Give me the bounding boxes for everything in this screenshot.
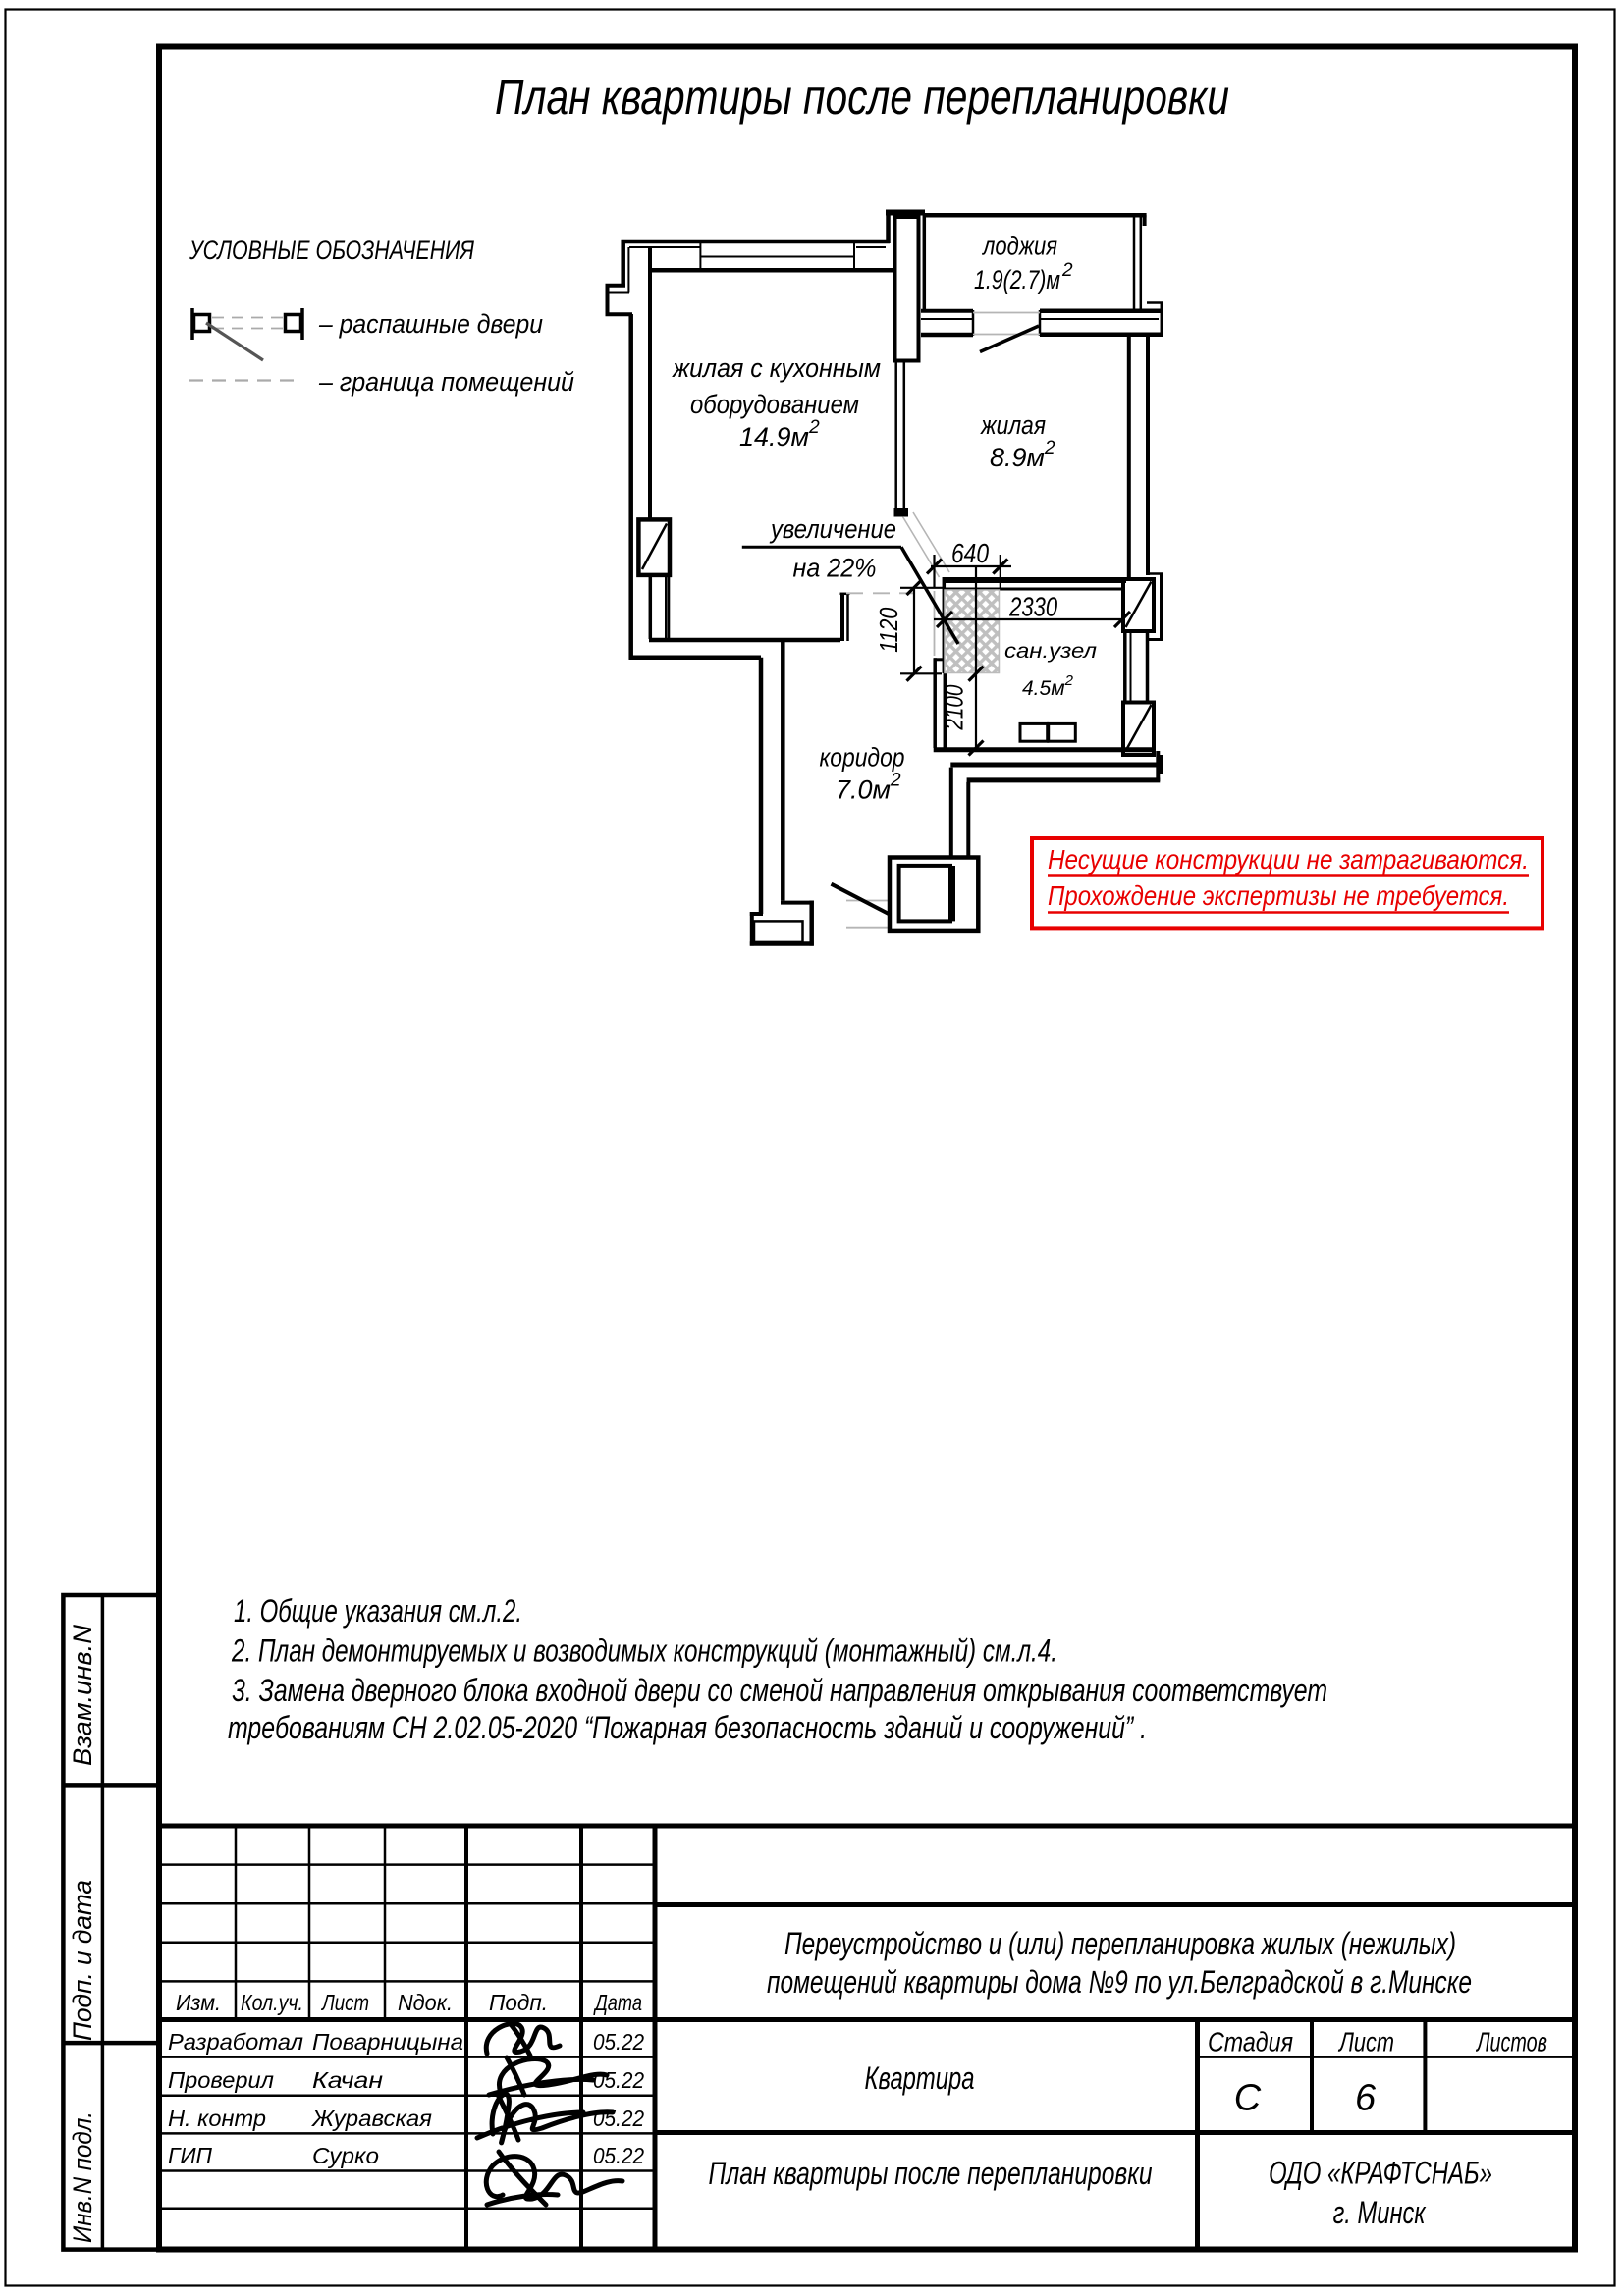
svg-text:Лист: Лист: [320, 1990, 369, 2015]
svg-text:коридор: коридор: [820, 743, 905, 773]
svg-text:14.9м2: 14.9м2: [739, 417, 820, 452]
svg-text:помещений квартиры дома №9 по: помещений квартиры дома №9 по ул.Белград…: [767, 1964, 1472, 2000]
svg-text:на 22%: на 22%: [793, 554, 877, 583]
svg-text:Квартира: Квартира: [865, 2060, 975, 2096]
svg-text:требованиям СН 2.02.05-2020 “П: требованиям СН 2.02.05-2020 “Пожарная бе…: [228, 1710, 1147, 1745]
svg-text:1. Общие указания см.л.2.: 1. Общие указания см.л.2.: [234, 1593, 522, 1629]
svg-text:сан.узел: сан.узел: [1004, 640, 1097, 663]
svg-text:Взам.инв.N: Взам.инв.N: [68, 1625, 97, 1766]
svg-text:Прохождение экспертизы не треб: Прохождение экспертизы не требуется.: [1048, 881, 1509, 911]
svg-text:ГИП: ГИП: [168, 2143, 212, 2168]
svg-text:Лист: Лист: [1337, 2027, 1394, 2057]
svg-text:План квартиры после перепланир: План квартиры после перепланировки: [495, 70, 1229, 125]
svg-text:640: 640: [951, 538, 989, 568]
svg-text:Стадия: Стадия: [1208, 2027, 1293, 2057]
svg-text:1120: 1120: [874, 607, 903, 652]
svg-text:05.22: 05.22: [593, 2029, 644, 2055]
svg-text:оборудованием: оборудованием: [690, 390, 859, 419]
svg-text:Кол.уч.: Кол.уч.: [241, 1990, 303, 2015]
svg-text:Подп.: Подп.: [489, 1990, 548, 2015]
svg-text:План квартиры после перепланир: План квартиры после перепланировки: [709, 2156, 1153, 2191]
svg-text:увеличение: увеличение: [769, 514, 896, 544]
svg-text:2: 2: [1061, 260, 1073, 281]
svg-text:лоджия: лоджия: [981, 232, 1057, 261]
svg-text:6: 6: [1355, 2078, 1377, 2119]
svg-text:Подп. и дата: Подп. и дата: [68, 1880, 97, 2041]
svg-text:Разработал: Разработал: [168, 2029, 303, 2055]
svg-text:3. Замена дверного блока входн: 3. Замена дверного блока входной двери с…: [232, 1673, 1327, 1708]
svg-text:Листов: Листов: [1476, 2027, 1547, 2057]
svg-text:г. Минск: г. Минск: [1333, 2195, 1427, 2230]
svg-text:С: С: [1234, 2078, 1262, 2119]
svg-text:Переустройство и (или) перепла: Переустройство и (или) перепланировка жи…: [784, 1926, 1456, 1961]
svg-text:Н. контр: Н. контр: [168, 2106, 266, 2131]
svg-text:УСЛОВНЫЕ ОБОЗНАЧЕНИЯ: УСЛОВНЫЕ ОБОЗНАЧЕНИЯ: [189, 236, 474, 265]
svg-text:Инв.N подл.: Инв.N подл.: [68, 2111, 97, 2243]
svg-text:жилая: жилая: [980, 410, 1046, 440]
svg-text:ОДО «КРАФТСНАБ»: ОДО «КРАФТСНАБ»: [1269, 2156, 1492, 2191]
svg-text:05.22: 05.22: [593, 2067, 644, 2093]
svg-text:– распашные двери: – распашные двери: [318, 309, 543, 339]
svg-text:2. План демонтируемых и возвод: 2. План демонтируемых и возводимых конст…: [231, 1633, 1057, 1669]
svg-text:05.22: 05.22: [593, 2143, 644, 2168]
svg-text:Несущие конструкции не затраги: Несущие конструкции не затрагиваются.: [1048, 844, 1529, 875]
svg-text:– граница помещений: – граница помещений: [318, 367, 574, 397]
svg-text:1.9(2.7)м: 1.9(2.7)м: [974, 265, 1060, 294]
svg-text:Сурко: Сурко: [312, 2143, 379, 2168]
svg-text:Качан: Качан: [312, 2067, 383, 2093]
svg-text:Поварницына: Поварницына: [312, 2029, 463, 2055]
svg-text:Nдок.: Nдок.: [398, 1990, 453, 2015]
svg-text:2100: 2100: [940, 684, 969, 730]
svg-text:Изм.: Изм.: [176, 1990, 221, 2015]
svg-text:Журавская: Журавская: [311, 2106, 432, 2131]
svg-text:Проверил: Проверил: [168, 2067, 274, 2093]
svg-text:2330: 2330: [1008, 592, 1057, 622]
svg-text:05.22: 05.22: [593, 2106, 644, 2131]
svg-text:Дата: Дата: [593, 1990, 642, 2015]
svg-text:жилая с кухонным: жилая с кухонным: [672, 353, 881, 383]
